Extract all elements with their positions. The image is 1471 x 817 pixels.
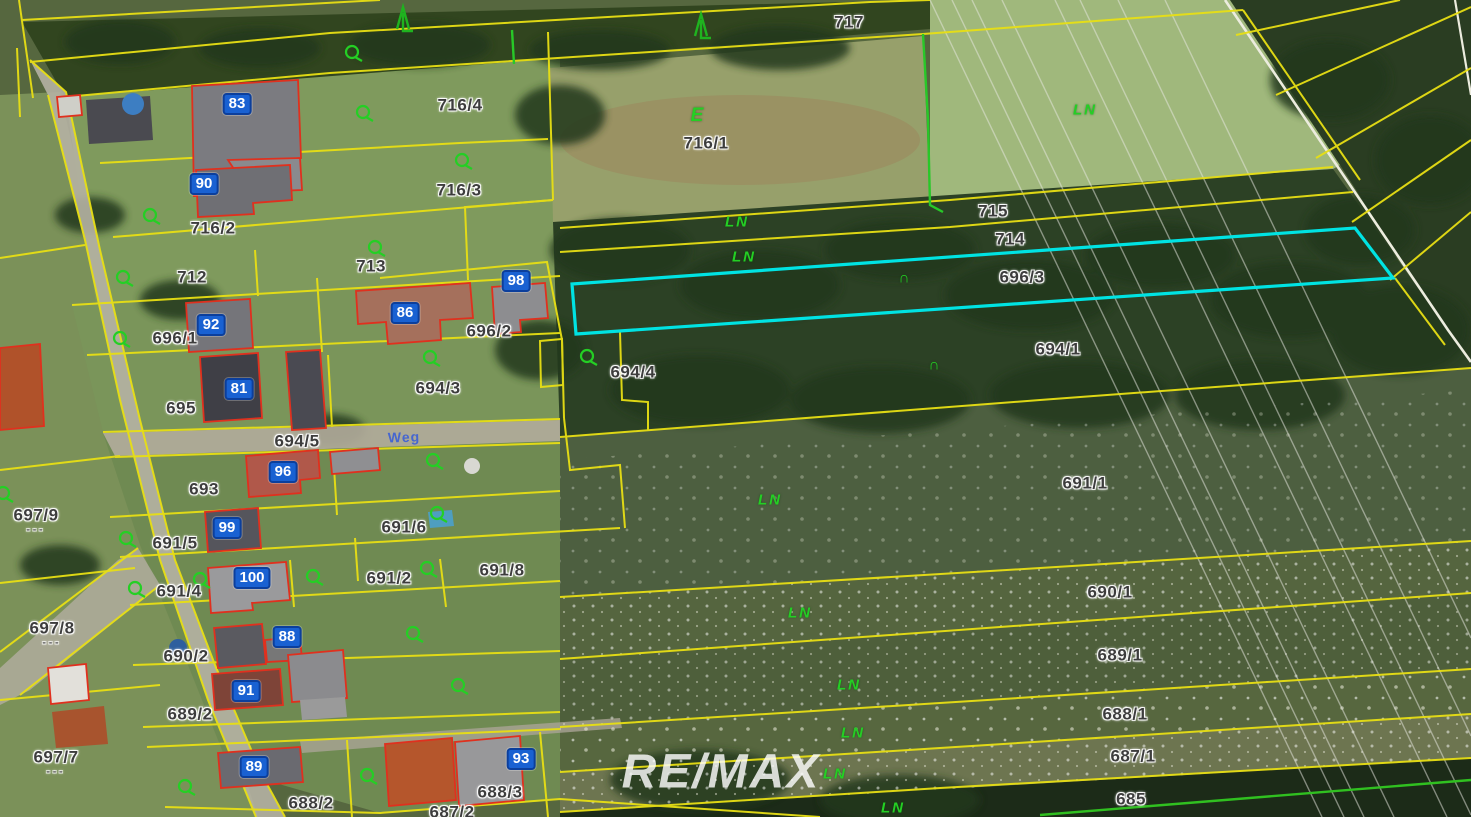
house-number-badge: 81: [225, 378, 254, 400]
parcel-label: 713: [356, 258, 386, 275]
parcel-label: 716/1: [683, 135, 728, 152]
parcel-label: 694/4: [610, 364, 655, 381]
house-number-badge: 99: [213, 517, 242, 539]
parcel-label: 689/1: [1097, 647, 1142, 664]
parcel-dashes: ---: [13, 525, 58, 536]
parcel-label: 714: [995, 231, 1025, 248]
usage-label: LN: [788, 605, 812, 622]
parcel-label: 694/5: [274, 433, 319, 450]
parcel-label: 691/1: [1062, 475, 1107, 492]
usage-label: LN: [1073, 102, 1097, 119]
usage-label: E: [691, 105, 706, 127]
usage-label: LN: [837, 677, 861, 694]
parcel-label: 688/1: [1102, 706, 1147, 723]
parcel-label: 691/5: [152, 535, 197, 552]
usage-label: LN: [732, 249, 756, 266]
parcel-label: 691/6: [381, 519, 426, 536]
house-number-badge: 91: [232, 680, 261, 702]
remax-watermark: RE/MAX: [622, 745, 821, 800]
parcel-label: 690/2: [163, 648, 208, 665]
house-number-badge: 92: [197, 314, 226, 336]
parcel-label: 691/2: [366, 570, 411, 587]
parcel-label: 687/1: [1110, 748, 1155, 765]
house-number-badge: 89: [240, 756, 269, 778]
parcel-dashes: ---: [29, 638, 74, 649]
usage-label: LN: [881, 800, 905, 817]
usage-label: ∩: [929, 357, 942, 374]
parcel-label: 687/2: [429, 804, 474, 817]
parcel-label: 716/4: [437, 97, 482, 114]
parcel-label: 696/2: [466, 323, 511, 340]
usage-label: LN: [758, 492, 782, 509]
parcel-label: 688/3: [477, 784, 522, 801]
house-number-badge: 96: [269, 461, 298, 483]
parcel-label: 697/9---: [13, 507, 58, 536]
road-name-label: Weg: [388, 428, 421, 445]
house-number-badge: 90: [190, 173, 219, 195]
house-number-badge: 100: [233, 567, 270, 589]
parcel-label: 693: [189, 481, 219, 498]
parcel-label: 712: [177, 269, 207, 286]
usage-label: LN: [725, 214, 749, 231]
parcel-dashes: ---: [33, 767, 78, 778]
parcel-label: 717: [834, 14, 864, 31]
map-canvas[interactable]: 717716/4716/1716/3716/2712713715714696/3…: [0, 0, 1471, 817]
parcel-label: 685: [1116, 791, 1146, 808]
house-number-badge: 83: [223, 93, 252, 115]
house-number-badge: 98: [502, 270, 531, 292]
parcel-label: 697/8---: [29, 620, 74, 649]
parcel-label: 695: [166, 400, 196, 417]
parcel-label: 716/3: [436, 182, 481, 199]
parcel-label: 689/2: [167, 706, 212, 723]
parcel-label: 697/7---: [33, 749, 78, 778]
usage-label: LN: [823, 766, 847, 783]
house-number-badge: 86: [391, 302, 420, 324]
usage-label: ∩: [899, 270, 912, 287]
parcel-label: 715: [978, 203, 1008, 220]
parcel-label: 691/8: [479, 562, 524, 579]
house-number-badge: 93: [507, 748, 536, 770]
usage-label: LN: [841, 725, 865, 742]
house-number-badge: 88: [273, 626, 302, 648]
parcel-label: 694/3: [415, 380, 460, 397]
parcel-label: 694/1: [1035, 341, 1080, 358]
parcel-label: 690/1: [1087, 584, 1132, 601]
parcel-label: 696/1: [152, 330, 197, 347]
parcel-label: 716/2: [190, 220, 235, 237]
parcel-label: 688/2: [288, 795, 333, 812]
parcel-label: 696/3: [999, 269, 1044, 286]
aerial-imagery-layer: [0, 0, 1471, 817]
parcel-label: 691/4: [156, 583, 201, 600]
